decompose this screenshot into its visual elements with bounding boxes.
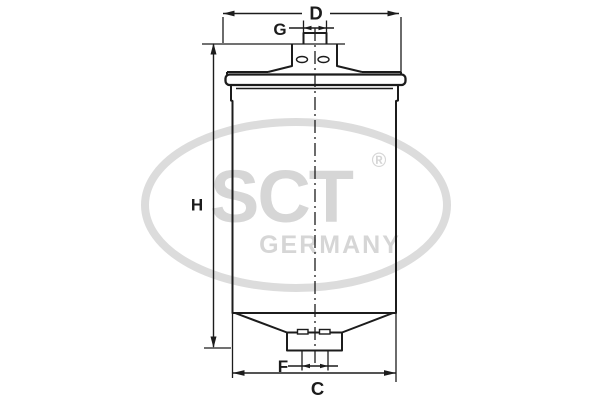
arrow-f-right: [320, 364, 328, 368]
dim-ext-d: [223, 17, 401, 74]
outlet-hole-left: [298, 330, 309, 335]
dim-label-g: G: [273, 20, 286, 39]
arrow-d-left: [223, 11, 235, 17]
cap-hole-right: [318, 57, 329, 63]
arrow-c-left: [233, 370, 245, 376]
bottom-funnel: [235, 313, 393, 333]
dim-ext-c: [233, 313, 397, 382]
technical-drawing-page: SCT ® GERMANY: [0, 0, 600, 400]
watermark-text: SCT ® GERMANY: [210, 150, 401, 259]
arrow-c-right: [384, 370, 396, 376]
dim-label-c: C: [311, 378, 324, 399]
fuel-filter-drawing: SCT ® GERMANY: [0, 0, 600, 400]
arrow-h-bottom: [211, 337, 217, 349]
dim-label-h: H: [191, 196, 203, 215]
dim-label-d: D: [309, 3, 322, 24]
cap-hole-left: [297, 57, 308, 63]
arrow-f-left: [302, 364, 310, 368]
arrow-g-left: [304, 26, 312, 30]
registered-trademark-icon: ®: [372, 150, 387, 172]
arrow-g-right: [319, 26, 327, 30]
watermark-country-text: GERMANY: [259, 231, 401, 259]
dim-label-f: F: [278, 357, 288, 376]
outlet-hole-right: [320, 330, 331, 335]
arrow-d-right: [388, 11, 400, 17]
arrow-h-top: [211, 43, 217, 55]
